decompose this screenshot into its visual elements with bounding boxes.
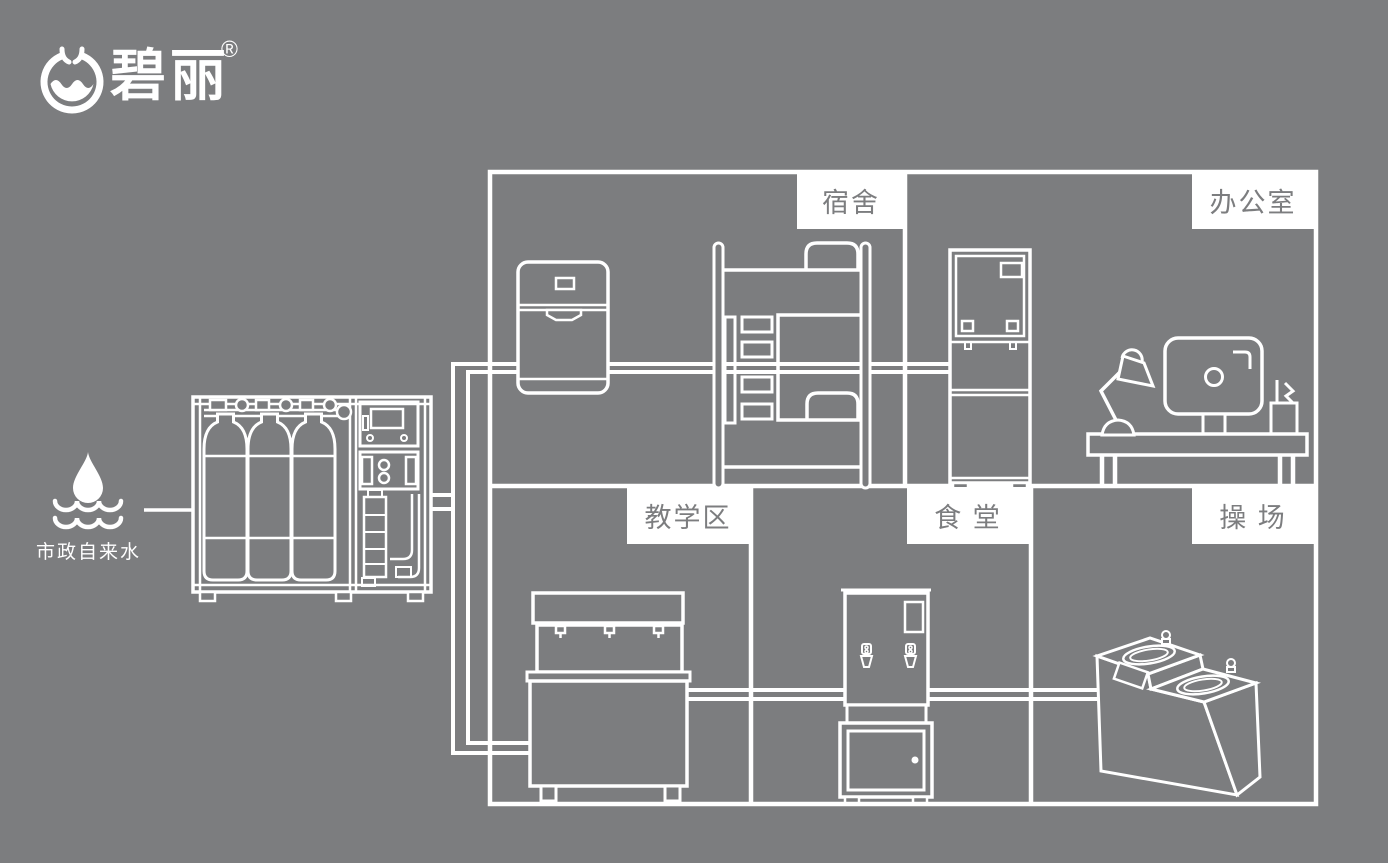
- pen-holder-icon: [1271, 403, 1297, 434]
- diagram-artwork: [0, 0, 1388, 863]
- lamp-shade: [1118, 356, 1153, 386]
- upper-pillow: [806, 243, 858, 269]
- zone-label-dormitory: 宿舍: [797, 172, 905, 229]
- lower-pillow: [807, 393, 858, 420]
- water-purification-system-icon: [193, 397, 431, 601]
- monitor-icon: [1165, 338, 1262, 414]
- monitor-stand: [1203, 414, 1225, 435]
- pens-icon: [1277, 380, 1294, 404]
- zone-label-office: 办公室: [1192, 172, 1314, 229]
- drinking-water-station-icon: [527, 593, 690, 801]
- municipal-water-icon: [55, 452, 121, 527]
- water-dispenser-icon: [518, 262, 608, 393]
- lamp-base: [1102, 420, 1134, 435]
- water-system-diagram: 碧丽 ® 市政自来水 宿舍 办公室 教学区 食 堂 操 场: [0, 0, 1388, 863]
- lower-bubbler: [1227, 659, 1235, 667]
- filter-tank-1: [204, 414, 247, 580]
- station-back-panel: [533, 593, 683, 623]
- upper-bubbler: [1162, 631, 1170, 639]
- water-drop-icon: [73, 452, 103, 503]
- logo-water-wave: [51, 80, 94, 101]
- logo-hooks: [62, 49, 82, 62]
- bed-post-left: [714, 243, 723, 488]
- zone-label-playground: 操 场: [1192, 487, 1314, 544]
- office-desk-icon: [1088, 338, 1307, 488]
- zone-label-canteen: 食 堂: [907, 487, 1029, 544]
- brand-logo-text: 碧丽: [110, 48, 230, 104]
- desk-legs: [1102, 455, 1293, 488]
- cabinet-knob: [912, 757, 919, 764]
- filter-tank-3: [292, 414, 335, 580]
- bunk-frame: [778, 315, 863, 420]
- zone-label-teaching-area: 教学区: [627, 487, 749, 544]
- filter-tank-2: [248, 414, 291, 580]
- desk-top: [1088, 434, 1307, 455]
- outdoor-drinking-fountain-icon: [1097, 631, 1260, 795]
- vertical-water-dispenser-icon: [950, 250, 1030, 490]
- water-source-label: 市政自来水: [36, 543, 141, 562]
- water-boiler-icon: [840, 590, 932, 803]
- bed-post-right: [861, 243, 870, 488]
- registered-trademark: ®: [221, 38, 238, 61]
- water-waves-icon: [55, 501, 121, 527]
- bili-logo-icon: [44, 49, 100, 110]
